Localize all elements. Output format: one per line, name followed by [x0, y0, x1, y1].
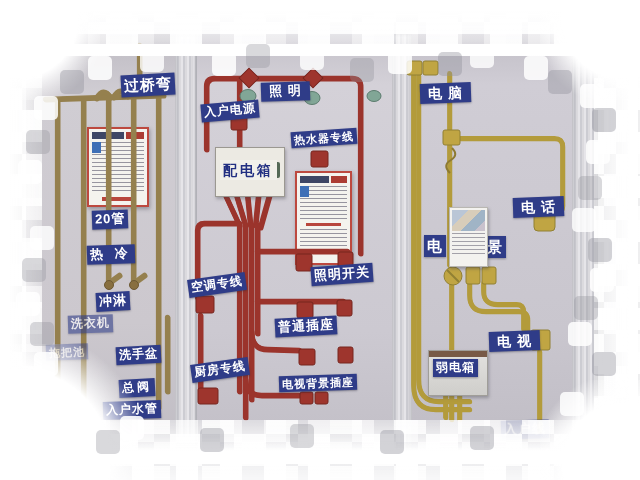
- label-shower: 冲淋: [96, 291, 131, 312]
- distribution-box: 配电箱: [215, 147, 285, 197]
- label-mop-pool: 拖把池: [46, 343, 89, 361]
- label-computer: 电脑: [420, 82, 472, 104]
- card-text-lines: [452, 233, 485, 258]
- label-telephone: 电话: [513, 196, 565, 218]
- label-wash-basin: 洗手盆: [116, 345, 162, 365]
- label-weak-current-box: 弱电箱: [433, 359, 478, 377]
- scene: 配电箱 弱电箱 过桥弯 20管 热 冷 冲淋 洗衣机 拖把池 洗手盆 总阀 入户…: [0, 0, 640, 480]
- label-common-socket: 普通插座: [275, 315, 338, 337]
- label-20-pipe: 20管: [92, 209, 129, 229]
- label-bridge-bend: 过桥弯: [120, 73, 175, 97]
- label-tv-bg-left-fragment: 电: [424, 235, 446, 257]
- box-top-bar: [429, 351, 487, 357]
- label-entry-line: 入户线: [501, 419, 550, 440]
- shower-valves: [105, 281, 139, 290]
- wiring-and-piping: [0, 0, 640, 480]
- label-tv-background-socket: 电视背景插座: [279, 374, 358, 393]
- demo-wall-photo: 配电箱 弱电箱 过桥弯 20管 热 冷 冲淋 洗衣机 拖把池 洗手盆 总阀 入户…: [0, 0, 640, 480]
- label-lighting: 照明: [261, 81, 311, 102]
- card-picture: [452, 210, 485, 231]
- label-distribution-box: 配电箱: [220, 160, 277, 180]
- label-tv: 电视: [489, 330, 541, 352]
- spec-card: [449, 207, 488, 267]
- weak-current-box: 弱电箱: [428, 350, 488, 396]
- label-main-valve: 总阀: [119, 378, 156, 397]
- label-washing-machine: 洗衣机: [68, 314, 114, 333]
- label-hot-cold: 热 冷: [87, 244, 135, 265]
- label-inlet-water-pipe: 入户水管: [103, 400, 162, 420]
